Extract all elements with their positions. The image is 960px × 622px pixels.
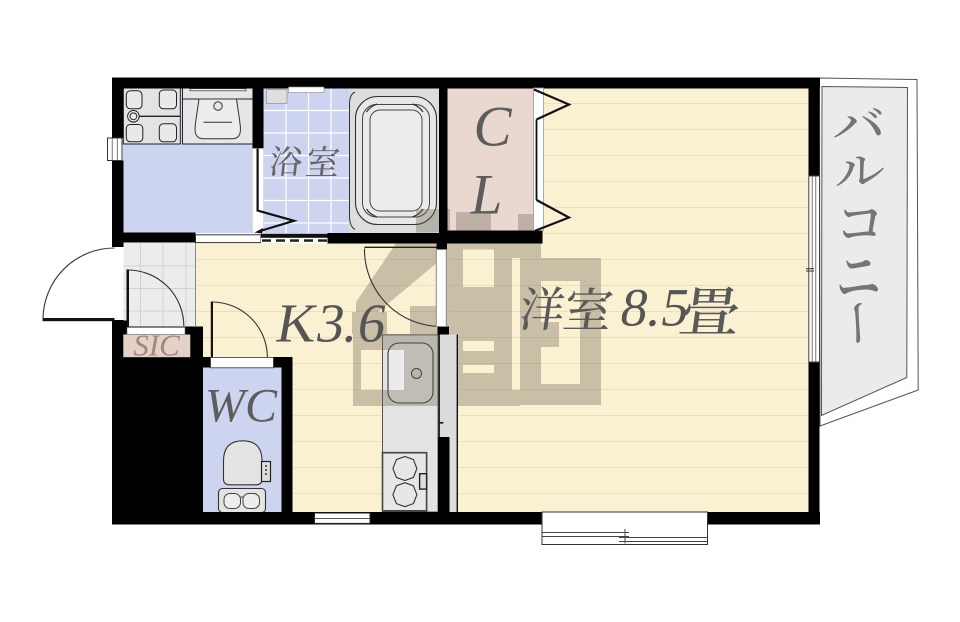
svg-text:WC: WC [205, 380, 278, 433]
svg-text:C: C [473, 95, 512, 158]
svg-text:K3.6: K3.6 [272, 293, 391, 354]
svg-text:L: L [470, 163, 503, 226]
svg-text:SIC: SIC [133, 328, 180, 363]
svg-text:8.5: 8.5 [616, 278, 694, 338]
